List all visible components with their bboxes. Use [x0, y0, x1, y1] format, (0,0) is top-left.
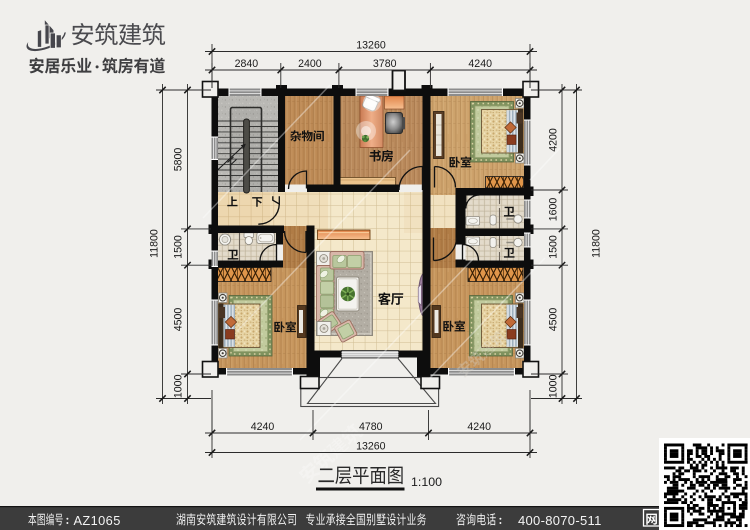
svg-text:4500: 4500 — [548, 308, 560, 332]
svg-text:1000: 1000 — [548, 374, 560, 398]
svg-text:4200: 4200 — [548, 128, 560, 152]
svg-text:1500: 1500 — [173, 235, 185, 259]
svg-text:4500: 4500 — [173, 308, 185, 332]
svg-text:13260: 13260 — [356, 40, 386, 52]
svg-text:4240: 4240 — [468, 58, 492, 70]
svg-text:2840: 2840 — [235, 58, 259, 70]
svg-text:1000: 1000 — [173, 374, 185, 398]
svg-text:3780: 3780 — [373, 58, 397, 70]
svg-text:11800: 11800 — [591, 229, 603, 258]
svg-text:4780: 4780 — [359, 421, 383, 433]
svg-text:5800: 5800 — [173, 148, 185, 172]
svg-text:1500: 1500 — [548, 235, 560, 259]
svg-text:400-8070-511: 400-8070-511 — [518, 513, 602, 528]
svg-text:13260: 13260 — [356, 441, 386, 453]
svg-text:AZ1065: AZ1065 — [74, 513, 121, 528]
svg-text:4240: 4240 — [467, 421, 491, 433]
svg-text:1:100: 1:100 — [411, 475, 442, 489]
svg-text:1600: 1600 — [548, 198, 560, 222]
svg-text:4240: 4240 — [251, 421, 275, 433]
svg-text:11800: 11800 — [149, 229, 161, 258]
svg-text:2400: 2400 — [298, 58, 322, 70]
